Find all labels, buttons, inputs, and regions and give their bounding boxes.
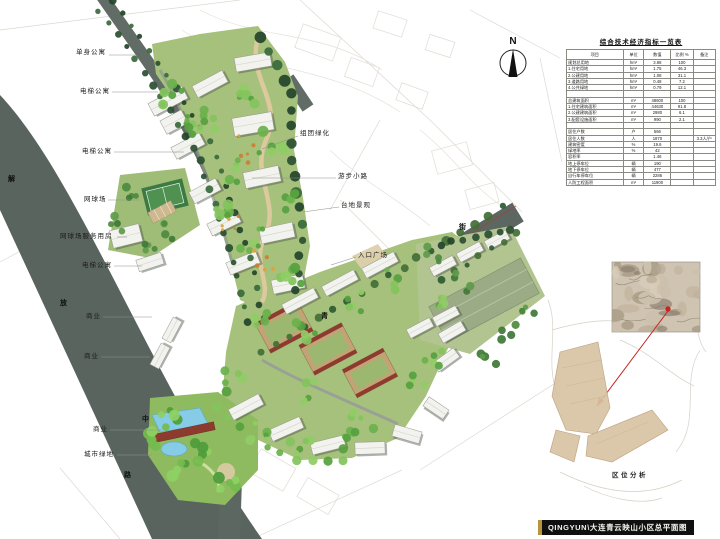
indicator-table-grid: 项目单位数值比例 %备注 规划总用地hm²3.981001.住宅用地hm²1.7… — [566, 49, 716, 186]
north-needle — [509, 49, 518, 77]
inset-caption: 区位分析 — [612, 469, 648, 479]
location-inset — [550, 259, 707, 462]
residential-building — [162, 315, 185, 344]
residential-building — [355, 441, 387, 456]
masterplan-sheet: N 单身公寓电梯公寓电梯公寓网球场网球场服务用房电梯公寓商业商业商业城市绿地组团… — [0, 0, 720, 539]
indicator-table-title: 综合技术经济指标一览表 — [566, 36, 716, 46]
site-marker-dot — [665, 306, 670, 311]
table-header-cell: 项目 — [567, 50, 624, 60]
table-header-cell: 比例 % — [671, 50, 693, 60]
table-cell: 人防工程面积 — [567, 179, 624, 185]
title-bar-black: QINGYUN\大连青云映山小区总平面图 — [542, 520, 694, 535]
small-pool — [161, 442, 187, 456]
residential-building — [391, 424, 424, 446]
indicator-table: 综合技术经济指标一览表 项目单位数值比例 %备注 规划总用地hm²3.98100… — [566, 36, 716, 186]
residential-building — [150, 341, 173, 370]
table-cell: m² — [623, 179, 644, 185]
table-cell: 11900 — [644, 179, 671, 185]
table-header-cell: 数值 — [644, 50, 671, 60]
table-row: 人防工程面积m²11900 — [567, 179, 716, 185]
table-header-cell: 备注 — [693, 50, 715, 60]
residential-building — [422, 397, 451, 422]
table-header-cell: 单位 — [623, 50, 644, 60]
table-header-row: 项目单位数值比例 %备注 — [567, 50, 716, 60]
table-cell — [693, 179, 715, 185]
site-parcels — [550, 342, 668, 462]
svg-text:N: N — [509, 36, 516, 47]
table-cell — [671, 179, 693, 185]
north-arrow: N — [500, 36, 526, 77]
sheet-title-bar: QINGYUN\大连青云映山小区总平面图 — [538, 520, 694, 535]
sheet-title-text: QINGYUN\大连青云映山小区总平面图 — [548, 522, 687, 533]
